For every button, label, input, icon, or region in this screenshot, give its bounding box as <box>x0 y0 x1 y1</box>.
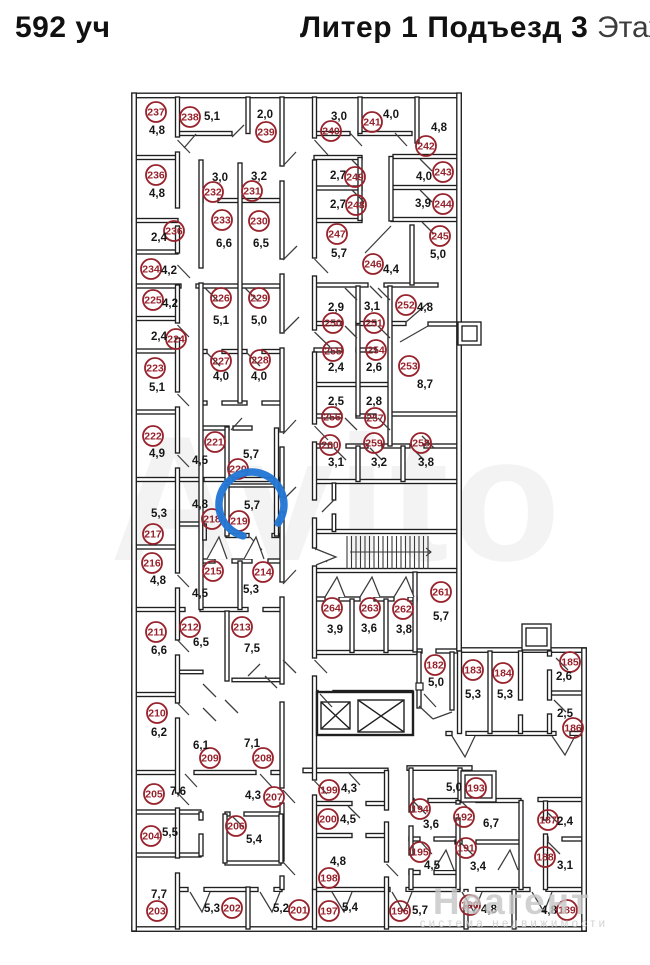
svg-text:4,0: 4,0 <box>213 371 229 383</box>
svg-text:205: 205 <box>145 789 163 801</box>
svg-text:7,1: 7,1 <box>244 738 261 750</box>
svg-text:232: 232 <box>204 187 222 199</box>
svg-text:4,9: 4,9 <box>149 448 165 460</box>
svg-text:206: 206 <box>227 821 245 833</box>
svg-text:201: 201 <box>290 905 308 917</box>
svg-text:4,3: 4,3 <box>341 783 357 795</box>
svg-text:254: 254 <box>367 345 385 357</box>
svg-text:262: 262 <box>394 604 412 616</box>
svg-text:7,7: 7,7 <box>151 889 167 901</box>
svg-text:231: 231 <box>243 186 261 198</box>
svg-text:248: 248 <box>347 200 365 212</box>
svg-text:225: 225 <box>144 295 162 307</box>
svg-text:4,8: 4,8 <box>149 188 166 200</box>
svg-text:4,0: 4,0 <box>416 171 432 183</box>
svg-text:2,4: 2,4 <box>151 232 168 244</box>
svg-text:244: 244 <box>434 199 452 211</box>
svg-text:192: 192 <box>455 812 473 824</box>
svg-text:241: 241 <box>363 117 381 129</box>
svg-text:245: 245 <box>431 231 449 243</box>
svg-text:198: 198 <box>320 873 338 885</box>
svg-text:227: 227 <box>212 356 230 368</box>
svg-text:Этаж: Этаж <box>597 11 650 44</box>
svg-text:3,0: 3,0 <box>212 172 228 184</box>
svg-text:5,0: 5,0 <box>251 315 267 327</box>
svg-text:5,1: 5,1 <box>204 111 221 123</box>
svg-text:2,5: 2,5 <box>557 708 574 720</box>
svg-text:2,4: 2,4 <box>151 331 168 343</box>
svg-text:183: 183 <box>464 665 482 677</box>
svg-text:215: 215 <box>204 566 222 578</box>
svg-text:5,5: 5,5 <box>162 827 179 839</box>
svg-text:228: 228 <box>251 355 269 367</box>
svg-text:210: 210 <box>148 708 166 720</box>
svg-text:252: 252 <box>397 300 415 312</box>
svg-text:223: 223 <box>146 363 164 375</box>
svg-text:211: 211 <box>148 627 165 639</box>
svg-text:186: 186 <box>564 723 582 735</box>
svg-text:7,6: 7,6 <box>170 786 186 798</box>
svg-text:187: 187 <box>539 815 557 827</box>
svg-text:195: 195 <box>411 847 429 859</box>
svg-text:3,0: 3,0 <box>331 111 347 123</box>
svg-text:Неагент: Неагент <box>433 881 591 922</box>
svg-text:4,5: 4,5 <box>340 814 357 826</box>
svg-text:261: 261 <box>432 587 450 599</box>
svg-text:203: 203 <box>148 906 166 918</box>
svg-text:207: 207 <box>265 792 283 804</box>
svg-text:5,7: 5,7 <box>244 500 260 512</box>
svg-text:226: 226 <box>212 293 230 305</box>
svg-text:219: 219 <box>230 516 248 528</box>
svg-text:3,8: 3,8 <box>418 457 435 469</box>
svg-text:246: 246 <box>364 259 382 271</box>
svg-text:6,5: 6,5 <box>253 238 270 250</box>
svg-text:4,8: 4,8 <box>149 125 166 137</box>
svg-text:8,7: 8,7 <box>417 379 433 391</box>
svg-text:5,4: 5,4 <box>342 902 359 914</box>
svg-text:224: 224 <box>167 334 185 346</box>
svg-text:257: 257 <box>366 413 384 425</box>
svg-text:5,4: 5,4 <box>246 834 263 846</box>
svg-text:3,6: 3,6 <box>361 623 377 635</box>
svg-text:4,8: 4,8 <box>431 122 448 134</box>
svg-text:система недвижимости: система недвижимости <box>420 918 609 930</box>
svg-text:191: 191 <box>457 843 475 855</box>
svg-text:4,4: 4,4 <box>383 264 400 276</box>
svg-text:193: 193 <box>467 783 485 795</box>
svg-text:4,8: 4,8 <box>192 499 209 511</box>
svg-text:197: 197 <box>320 906 338 918</box>
svg-text:251: 251 <box>365 318 383 330</box>
svg-text:6,7: 6,7 <box>483 818 499 830</box>
svg-text:4,0: 4,0 <box>251 371 267 383</box>
svg-text:4,0: 4,0 <box>383 109 399 121</box>
svg-text:5,7: 5,7 <box>243 449 259 461</box>
svg-text:5,3: 5,3 <box>243 584 259 596</box>
svg-text:221: 221 <box>206 437 224 449</box>
svg-text:242: 242 <box>417 141 435 153</box>
svg-text:234: 234 <box>142 264 160 276</box>
svg-text:6,6: 6,6 <box>216 238 232 250</box>
svg-text:216: 216 <box>143 558 161 570</box>
svg-text:259: 259 <box>365 438 383 450</box>
svg-text:4,8: 4,8 <box>417 302 434 314</box>
svg-text:236: 236 <box>165 226 183 238</box>
svg-text:Литер 1 Подъезд 3: Литер 1 Подъезд 3 <box>300 11 588 44</box>
svg-text:2,7: 2,7 <box>330 170 346 182</box>
svg-text:185: 185 <box>561 657 579 669</box>
svg-text:2,7: 2,7 <box>330 199 346 211</box>
svg-text:3,1: 3,1 <box>328 457 345 469</box>
svg-text:202: 202 <box>223 903 241 915</box>
svg-text:5,1: 5,1 <box>213 315 230 327</box>
svg-text:250: 250 <box>324 318 342 330</box>
svg-text:3,9: 3,9 <box>415 198 431 210</box>
svg-text:222: 222 <box>144 431 162 443</box>
svg-text:3,8: 3,8 <box>396 624 413 636</box>
svg-text:2,8: 2,8 <box>366 396 383 408</box>
svg-text:4,2: 4,2 <box>161 265 177 277</box>
svg-text:5,3: 5,3 <box>204 903 220 915</box>
svg-text:5,3: 5,3 <box>497 689 513 701</box>
svg-text:592 уч: 592 уч <box>15 11 111 44</box>
svg-text:264: 264 <box>323 603 341 615</box>
svg-text:182: 182 <box>426 660 444 672</box>
svg-text:233: 233 <box>213 215 231 227</box>
svg-text:249: 249 <box>346 172 364 184</box>
svg-text:3,4: 3,4 <box>470 861 487 873</box>
svg-text:230: 230 <box>250 216 268 228</box>
svg-text:2,4: 2,4 <box>328 362 345 374</box>
svg-text:188: 188 <box>536 852 554 864</box>
svg-text:2,4: 2,4 <box>557 816 574 828</box>
svg-text:247: 247 <box>328 229 346 241</box>
svg-text:5,3: 5,3 <box>465 689 481 701</box>
svg-text:255: 255 <box>324 346 342 358</box>
svg-text:3,2: 3,2 <box>371 457 387 469</box>
svg-text:256: 256 <box>323 412 341 424</box>
svg-text:2,9: 2,9 <box>328 302 344 314</box>
svg-text:229: 229 <box>250 293 268 305</box>
svg-text:2,0: 2,0 <box>257 109 273 121</box>
svg-text:209: 209 <box>201 753 219 765</box>
svg-text:214: 214 <box>254 567 272 579</box>
svg-text:260: 260 <box>321 440 339 452</box>
svg-text:5,0: 5,0 <box>428 677 444 689</box>
svg-text:184: 184 <box>494 668 512 680</box>
svg-text:253: 253 <box>400 361 418 373</box>
svg-text:204: 204 <box>142 831 160 843</box>
svg-text:5,2: 5,2 <box>273 903 289 915</box>
svg-text:213: 213 <box>233 622 251 634</box>
svg-text:6,5: 6,5 <box>193 637 210 649</box>
svg-text:238: 238 <box>181 112 199 124</box>
svg-text:3,2: 3,2 <box>251 171 267 183</box>
svg-text:5,7: 5,7 <box>433 611 449 623</box>
svg-text:3,1: 3,1 <box>557 860 574 872</box>
svg-text:208: 208 <box>254 753 272 765</box>
svg-text:4,8: 4,8 <box>150 575 167 587</box>
svg-text:200: 200 <box>319 814 337 826</box>
svg-text:5,7: 5,7 <box>331 248 347 260</box>
svg-text:5,0: 5,0 <box>430 249 446 261</box>
svg-text:4,5: 4,5 <box>192 455 209 467</box>
svg-text:3,1: 3,1 <box>364 301 381 313</box>
svg-text:239: 239 <box>257 127 275 139</box>
svg-text:258: 258 <box>412 438 430 450</box>
svg-text:263: 263 <box>361 603 379 615</box>
svg-text:6,6: 6,6 <box>151 645 167 657</box>
svg-text:3,6: 3,6 <box>423 819 439 831</box>
svg-text:2,6: 2,6 <box>556 671 572 683</box>
svg-text:5,1: 5,1 <box>149 382 166 394</box>
svg-text:212: 212 <box>181 622 199 634</box>
svg-text:5,3: 5,3 <box>151 508 167 520</box>
svg-text:5,0: 5,0 <box>446 782 462 794</box>
svg-text:194: 194 <box>411 804 429 816</box>
svg-text:2,6: 2,6 <box>366 362 382 374</box>
svg-text:196: 196 <box>391 906 409 918</box>
svg-text:2,5: 2,5 <box>328 396 345 408</box>
svg-text:4,2: 4,2 <box>162 298 178 310</box>
svg-text:240: 240 <box>322 126 340 138</box>
svg-text:243: 243 <box>434 167 452 179</box>
svg-text:4,3: 4,3 <box>245 790 261 802</box>
svg-text:7,5: 7,5 <box>244 643 261 655</box>
svg-text:6,1: 6,1 <box>193 740 210 752</box>
svg-text:199: 199 <box>320 785 338 797</box>
svg-text:4,5: 4,5 <box>424 860 441 872</box>
svg-text:237: 237 <box>147 107 165 119</box>
svg-text:5,7: 5,7 <box>412 905 428 917</box>
svg-text:236: 236 <box>147 170 165 182</box>
svg-text:4,5: 4,5 <box>192 588 209 600</box>
svg-text:4,8: 4,8 <box>330 856 347 868</box>
svg-text:3,9: 3,9 <box>327 624 343 636</box>
svg-text:6,2: 6,2 <box>151 727 167 739</box>
svg-text:217: 217 <box>144 529 162 541</box>
